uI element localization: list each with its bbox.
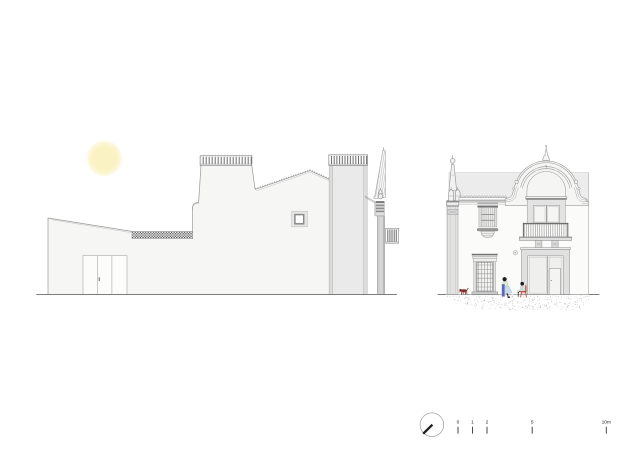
svg-text:5: 5: [531, 420, 534, 426]
svg-text:1: 1: [471, 420, 474, 426]
svg-text:10m: 10m: [602, 420, 611, 426]
svg-text:0: 0: [457, 420, 460, 426]
svg-text:2: 2: [486, 420, 489, 426]
